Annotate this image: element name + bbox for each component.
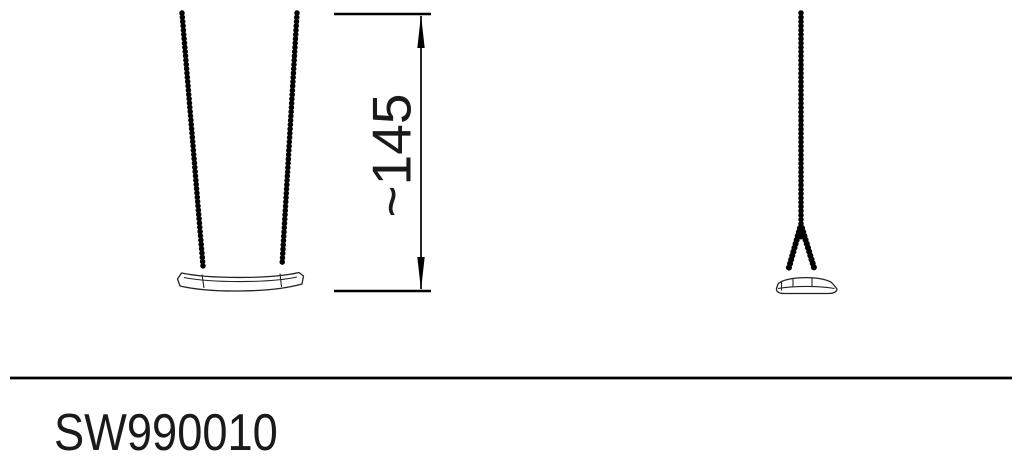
technical-drawing-page: ~145 SW990010 [0, 0, 1024, 465]
swing-front-view [178, 13, 304, 291]
product-code: SW990010 [54, 407, 278, 459]
dimension-145 [334, 14, 431, 291]
dimension-arrow-down [417, 257, 424, 290]
swing-technical-drawing [0, 0, 1024, 465]
dimension-arrow-up [417, 15, 424, 48]
swing-side-view [776, 13, 837, 294]
side-chain-left-leg [788, 228, 800, 271]
front-seat [178, 273, 304, 292]
front-left-chain [182, 13, 203, 266]
front-right-chain [282, 13, 297, 266]
side-chain-right-leg [802, 228, 815, 271]
side-seat-profile [776, 278, 837, 294]
